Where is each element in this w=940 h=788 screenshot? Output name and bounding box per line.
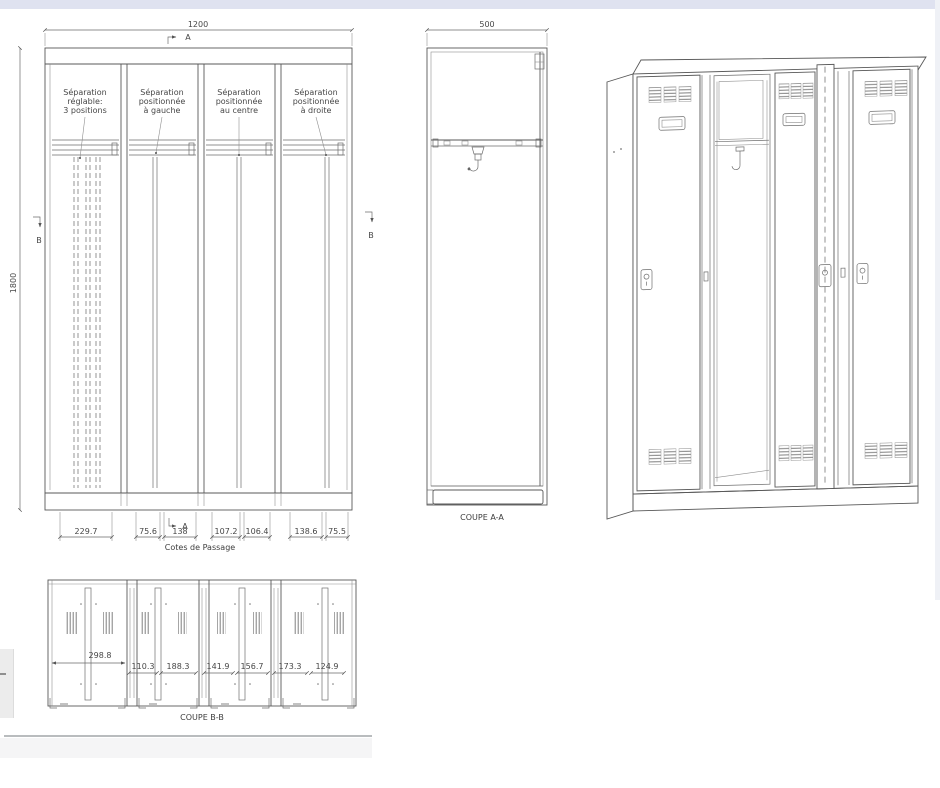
svg-text:à droite: à droite (301, 106, 332, 115)
hat-shelf-section (431, 139, 543, 147)
svg-text:Séparation: Séparation (217, 87, 261, 97)
svg-text:positionnée: positionnée (139, 96, 186, 106)
dim-500-label: 500 (479, 20, 494, 29)
passage-dim-7: 75.5 (326, 512, 348, 541)
bb-door-channels (127, 580, 281, 706)
separator-right-position (325, 157, 329, 488)
svg-text:réglable:: réglable: (67, 96, 102, 106)
separator-left-position (153, 157, 157, 488)
svg-text:188.3: 188.3 (167, 662, 190, 671)
svg-text:75.6: 75.6 (139, 527, 157, 536)
dim-1800-label: 1800 (9, 273, 18, 293)
bb-feet (50, 698, 354, 708)
section-b-right-label: B (368, 231, 374, 240)
passage-dim-6: 138.6 (290, 512, 322, 541)
side-section-base (427, 486, 543, 504)
drawing-canvas: 1200 A 1800 (0, 0, 940, 788)
section-marker-b-left: B (33, 217, 42, 245)
vent-grille-icon (649, 87, 661, 102)
passage-dim-3: 138 (164, 512, 196, 541)
adjustable-separator-positions (74, 157, 100, 488)
iso-front-face (633, 62, 918, 511)
passage-dim-5: 106.4 (244, 512, 270, 541)
svg-text:138.6: 138.6 (295, 527, 318, 536)
svg-text:106.4: 106.4 (246, 527, 269, 536)
passage-dim-4: 107.2 (212, 512, 240, 541)
bb-dim-2: 188.3 (161, 662, 196, 673)
svg-text:75.5: 75.5 (328, 527, 346, 536)
rails-compartment-2 (129, 140, 196, 155)
section-marker-a-top: A (168, 33, 191, 44)
compartment-label-2: Séparation positionnée à gauche (139, 87, 186, 153)
svg-text:156.7: 156.7 (241, 662, 264, 671)
rails-compartment-1 (52, 140, 119, 155)
svg-text:à gauche: à gauche (144, 106, 181, 115)
section-a-top-label: A (185, 33, 191, 42)
dim-width-1200: 1200 (45, 20, 352, 46)
compartment-label-1: Séparation réglable: 3 positions (63, 87, 107, 158)
coat-hook-icon (468, 147, 484, 171)
passage-dimensions: 229.7 75.6 138 107.2 (60, 512, 348, 541)
coupe-bb-view: 298.8 110.3 188.3 141.9 156.7 173.3 (48, 580, 356, 722)
dim-1200-label: 1200 (188, 20, 208, 29)
bb-dim-1: 110.3 (129, 662, 157, 673)
technical-drawing: 1200 A 1800 (0, 0, 940, 788)
rails-compartment-4 (283, 140, 345, 155)
hat-shelf-rails (52, 140, 345, 155)
svg-text:Séparation: Séparation (294, 87, 338, 97)
svg-text:positionnée: positionnée (293, 96, 340, 106)
section-marker-b-right: B (365, 212, 374, 240)
separator-center-position (237, 157, 241, 488)
svg-text:124.9: 124.9 (316, 662, 339, 671)
svg-text:au centre: au centre (220, 106, 258, 115)
coupe-aa-caption: COUPE A-A (460, 513, 504, 522)
svg-text:107.2: 107.2 (215, 527, 238, 536)
svg-text:Séparation: Séparation (63, 87, 107, 97)
bb-dim-5: 173.3 (274, 662, 307, 673)
dim-height-1800: 1800 (9, 48, 20, 510)
rails-compartment-3 (206, 140, 273, 155)
svg-text:229.7: 229.7 (75, 527, 98, 536)
front-view-caption: Cotes de Passage (165, 543, 235, 552)
svg-text:141.9: 141.9 (207, 662, 230, 671)
section-b-left-label: B (36, 236, 42, 245)
dim-width-500: 500 (427, 20, 547, 46)
svg-text:110.3: 110.3 (132, 662, 155, 671)
bb-dim-3: 141.9 (204, 662, 233, 673)
iso-view (607, 57, 926, 519)
svg-text:298.8: 298.8 (89, 651, 112, 660)
bb-vent-slots (66, 612, 344, 634)
svg-text:3 positions: 3 positions (63, 106, 107, 115)
half-open-door (817, 64, 834, 488)
side-section-outline (427, 48, 547, 505)
svg-text:positionnée: positionnée (216, 96, 263, 106)
passage-dim-1: 229.7 (60, 512, 112, 541)
svg-text:Séparation: Séparation (140, 87, 184, 97)
iso-left-face (607, 74, 633, 519)
passage-dim-2: 75.6 (136, 512, 160, 541)
svg-text:173.3: 173.3 (279, 662, 302, 671)
coupe-bb-caption: COUPE B-B (180, 713, 224, 722)
coupe-aa-view: 500 (427, 20, 547, 522)
bb-separator-bars (80, 588, 334, 700)
front-cabinet-outline (45, 48, 352, 510)
front-view: 1200 A 1800 (9, 20, 374, 552)
svg-text:138: 138 (172, 527, 187, 536)
